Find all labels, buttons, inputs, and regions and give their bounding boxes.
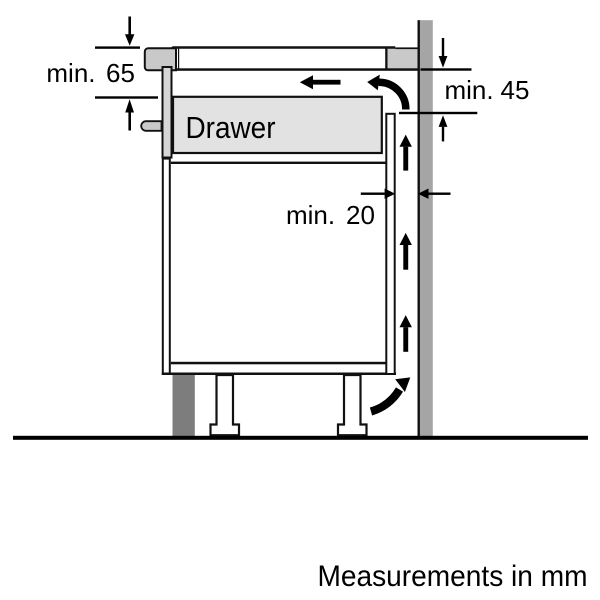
svg-text:Measurements in mm: Measurements in mm — [318, 560, 588, 593]
svg-text:45: 45 — [501, 75, 530, 105]
svg-text:20: 20 — [346, 200, 375, 230]
svg-text:min.: min. — [445, 75, 494, 105]
svg-text:min.: min. — [46, 58, 95, 88]
svg-text:min.: min. — [286, 200, 335, 230]
svg-text:Drawer: Drawer — [186, 111, 276, 145]
svg-text:65: 65 — [106, 58, 135, 88]
